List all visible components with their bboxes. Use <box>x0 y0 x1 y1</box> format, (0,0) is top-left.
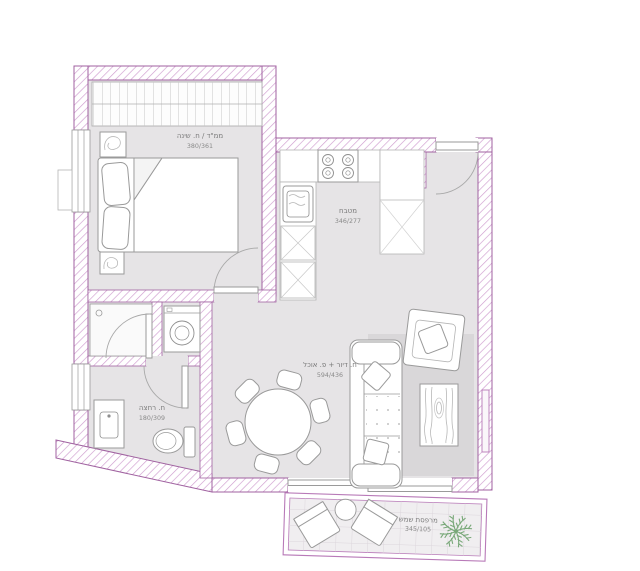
kitchen-dims: 346/277 <box>335 218 361 225</box>
double-bed <box>98 158 238 252</box>
bedroom-dims: 380/361 <box>187 143 213 150</box>
sofa <box>350 340 402 488</box>
balcony: מרפסת שמש 345/105 <box>283 493 487 561</box>
kitchen-label: מטבח <box>339 207 357 215</box>
wardrobe <box>92 82 262 126</box>
armchair <box>403 309 465 371</box>
nightstand-plant-2 <box>100 252 124 274</box>
kitchen-sink <box>283 186 313 222</box>
bathroom-vanity <box>94 400 124 448</box>
bathroom-window <box>72 364 90 410</box>
nightstand-plant <box>100 132 126 157</box>
floor-plan-canvas: מרפסת שמש 345/105 ממ"ד / ח. שינה 380/361… <box>0 0 640 571</box>
sofa-pillow-2 <box>363 439 390 466</box>
bedroom-window <box>58 130 90 212</box>
kitchen-cabinets <box>281 226 315 298</box>
balcony-dims: 345/105 <box>405 526 431 534</box>
side-table <box>335 499 357 521</box>
bathroom-dims: 180/309 <box>139 415 165 422</box>
dining-table <box>245 389 311 455</box>
balcony-label: מרפסת שמש <box>399 515 439 524</box>
stove-cooktop <box>318 150 358 182</box>
bedroom-label: ממ"ד / ח. שינה <box>177 132 224 140</box>
shower <box>90 304 152 358</box>
bathroom-label: ח. רחצה <box>139 404 165 412</box>
living-dining-label: ח. דיור + פ. אוכל <box>303 361 357 369</box>
floor-plan-page: מרפסת שמש 345/105 ממ"ד / ח. שינה 380/361… <box>0 0 640 571</box>
coffee-table <box>420 384 458 446</box>
washing-machine <box>164 306 200 352</box>
refrigerator <box>380 150 424 254</box>
living-dining-dims: 594/436 <box>317 372 343 379</box>
tv-unit <box>482 390 489 452</box>
